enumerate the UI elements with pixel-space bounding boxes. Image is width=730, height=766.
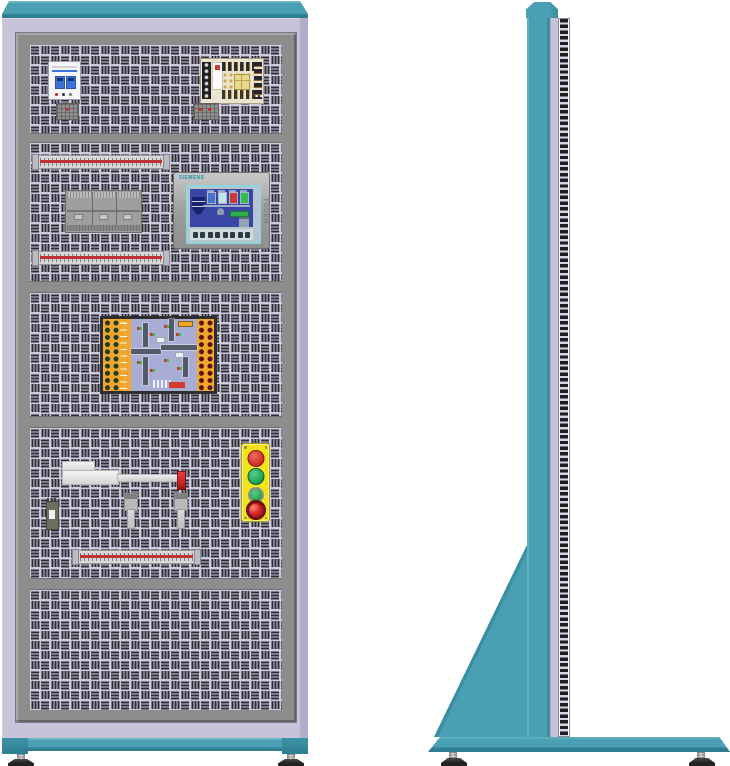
panel-separator [30,133,282,143]
banana-jack-field [103,319,120,391]
jack-labels [120,319,131,391]
hmi-function-key[interactable] [208,232,213,238]
side-base [428,737,730,752]
breaker-indicator [69,93,72,96]
breaker-marking [52,70,77,72]
circuit-breaker[interactable] [48,61,81,100]
foot-stem [697,752,705,758]
traffic-light-simulation-board [100,316,217,394]
terminal-block [56,103,79,120]
mimic-vessel [218,192,227,204]
relay [46,501,59,530]
intersection-graphic [131,319,197,391]
breaker-marking [52,66,77,68]
hmi-function-key[interactable] [238,232,243,238]
plc-terminals [67,225,140,231]
wiring-terminal-strip [33,251,169,265]
hmi-function-keys [190,229,253,240]
breaker-toggle[interactable] [55,76,65,89]
slotted-mounting-rail [558,18,570,737]
hmi-function-key[interactable] [193,232,198,238]
panel-separator [30,578,282,590]
banana-jack-field [197,319,214,391]
board-accent-bar [178,321,193,327]
pneumatic-cylinder [62,470,119,485]
training-cabinet-illustration: SIEMENS TOUCH [0,0,730,766]
psu-terminal-block [202,62,211,99]
psu-transformer [234,74,250,90]
mimic-tank [239,217,249,227]
board-name-plate [169,382,185,388]
side-column [527,18,550,737]
base-end-cap [282,738,308,754]
leveling-foot [441,758,467,766]
leveling-foot [689,758,715,766]
cabinet-top-cap [2,1,308,18]
pushbutton-station [241,443,270,522]
hmi-function-key[interactable] [230,232,235,238]
mimic-mixer [217,208,224,215]
mimic-vessel [207,192,216,204]
base-end-cap [2,738,28,754]
panel-separator [30,281,282,293]
leveling-foot [278,759,304,766]
hmi-brand-label: SIEMENS [179,175,204,181]
hmi-function-key[interactable] [223,232,228,238]
sensor [124,493,136,527]
leveling-foot [8,759,34,766]
hmi-function-key[interactable] [215,232,220,238]
foot-stem [449,752,457,758]
hmi-screen-frame [186,185,261,244]
cabinet-base [2,738,308,751]
plc-terminals [67,192,140,198]
psu-components [254,62,262,99]
perforated-panel-5 [30,590,282,710]
hmi-function-key[interactable] [200,232,205,238]
emergency-stop-button[interactable] [246,500,266,520]
mimic-vessel [240,192,249,204]
mimic-pipe [203,205,250,207]
terminal-block [193,103,219,120]
psu-components [222,62,254,71]
wiring-terminal-strip [33,155,169,169]
hmi-touch-panel: SIEMENS TOUCH [173,172,270,249]
side-top-cap [526,2,558,18]
pushbutton-red[interactable] [247,450,264,467]
panel-separator [30,416,282,428]
hmi-function-key[interactable] [245,232,250,238]
cabinet-body-side-shade [300,18,308,738]
breaker-toggle[interactable] [66,76,76,89]
pushbutton-green[interactable] [247,468,264,485]
mimic-vessel [229,192,238,204]
plc-module [65,190,142,233]
hmi-screen[interactable] [190,189,253,227]
breaker-indicator [55,93,58,96]
wiring-terminal-strip [73,550,200,564]
cylinder-rod [117,474,180,482]
switching-power-supply [200,58,264,104]
sensor [174,493,186,527]
breaker-indicator [62,93,65,96]
cylinder-tip [177,471,186,490]
